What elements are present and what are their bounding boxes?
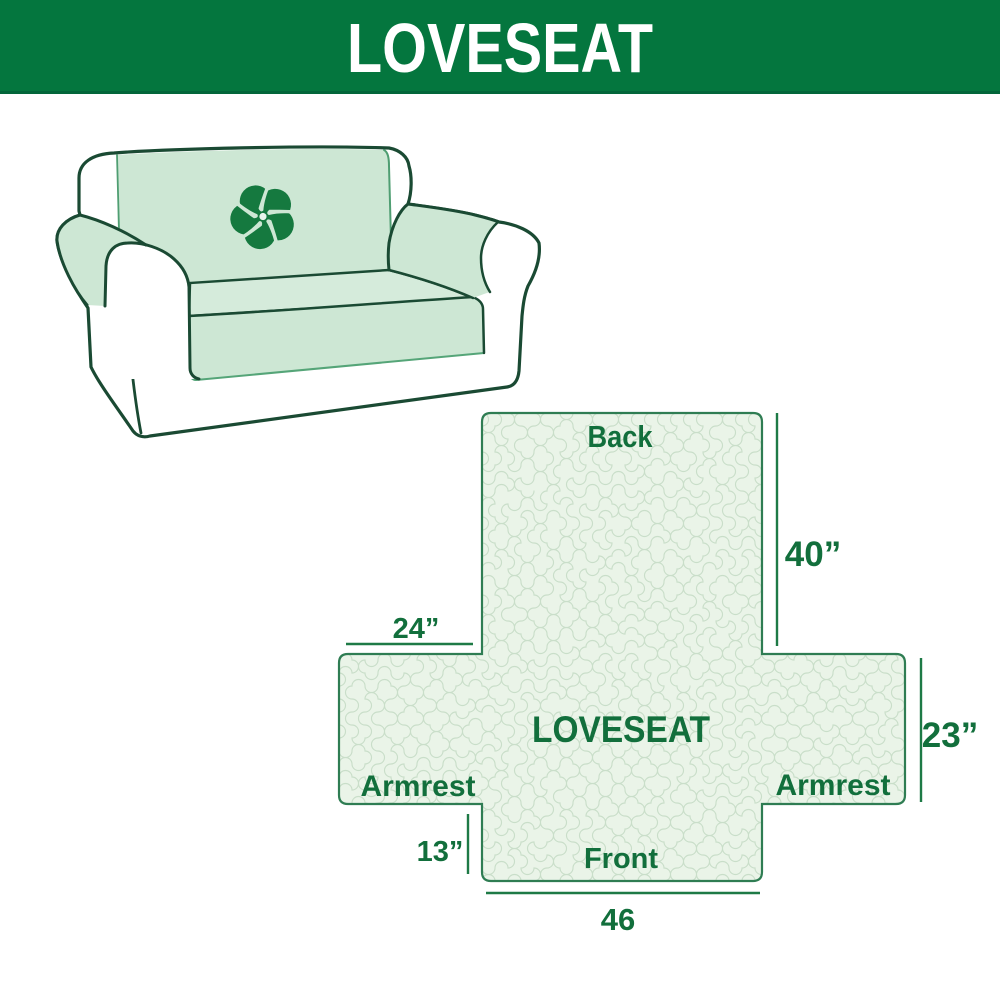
svg-text:Front: Front — [584, 843, 658, 875]
svg-text:13”: 13” — [417, 836, 464, 868]
svg-text:Back: Back — [588, 419, 654, 454]
svg-text:LOVESEAT: LOVESEAT — [532, 709, 710, 750]
svg-text:Armrest: Armrest — [775, 769, 890, 802]
svg-text:24”: 24” — [393, 613, 440, 645]
svg-text:Armrest: Armrest — [360, 770, 475, 803]
svg-text:46: 46 — [601, 902, 635, 937]
svg-text:23”: 23” — [922, 716, 978, 755]
svg-text:40”: 40” — [785, 535, 841, 574]
svg-text:LOVESEAT: LOVESEAT — [347, 9, 653, 87]
